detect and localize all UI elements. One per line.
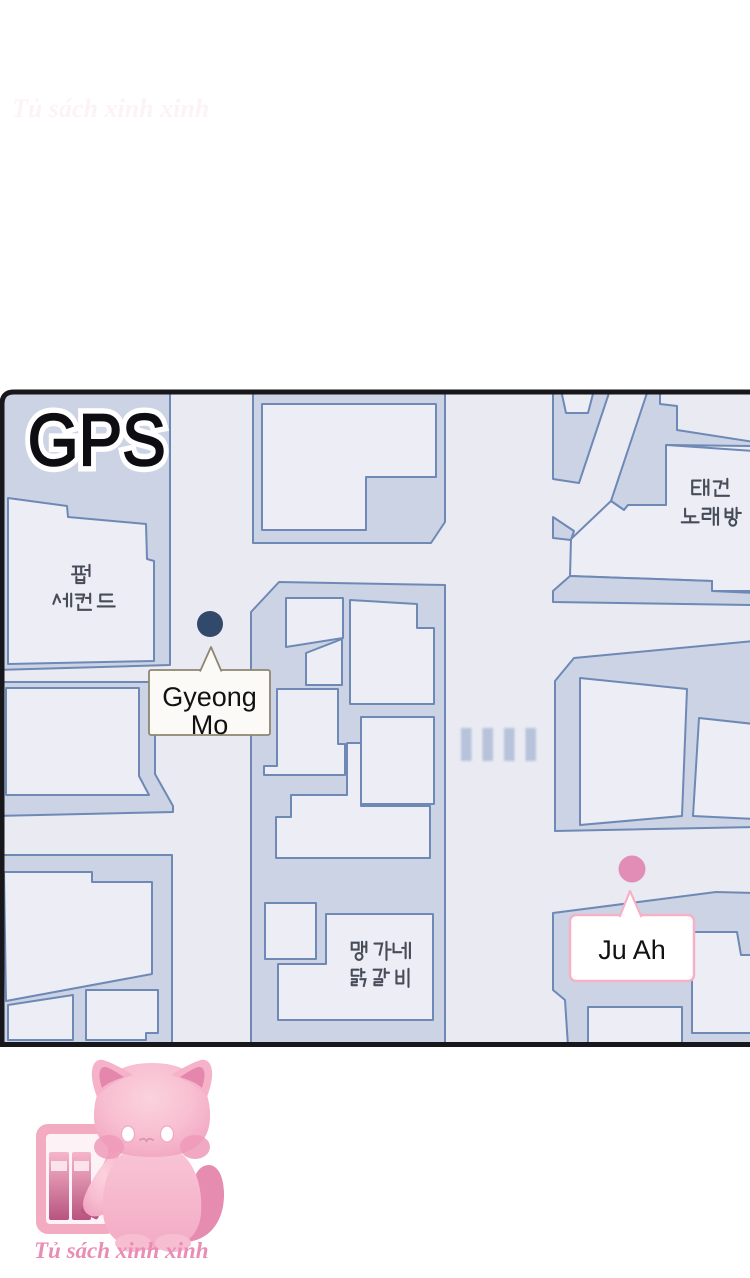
svg-text:Mo: Mo <box>191 710 229 740</box>
svg-text:GPS: GPS <box>28 400 166 481</box>
svg-text:Ju Ah: Ju Ah <box>598 935 666 965</box>
svg-text:Gyeong: Gyeong <box>162 682 257 712</box>
